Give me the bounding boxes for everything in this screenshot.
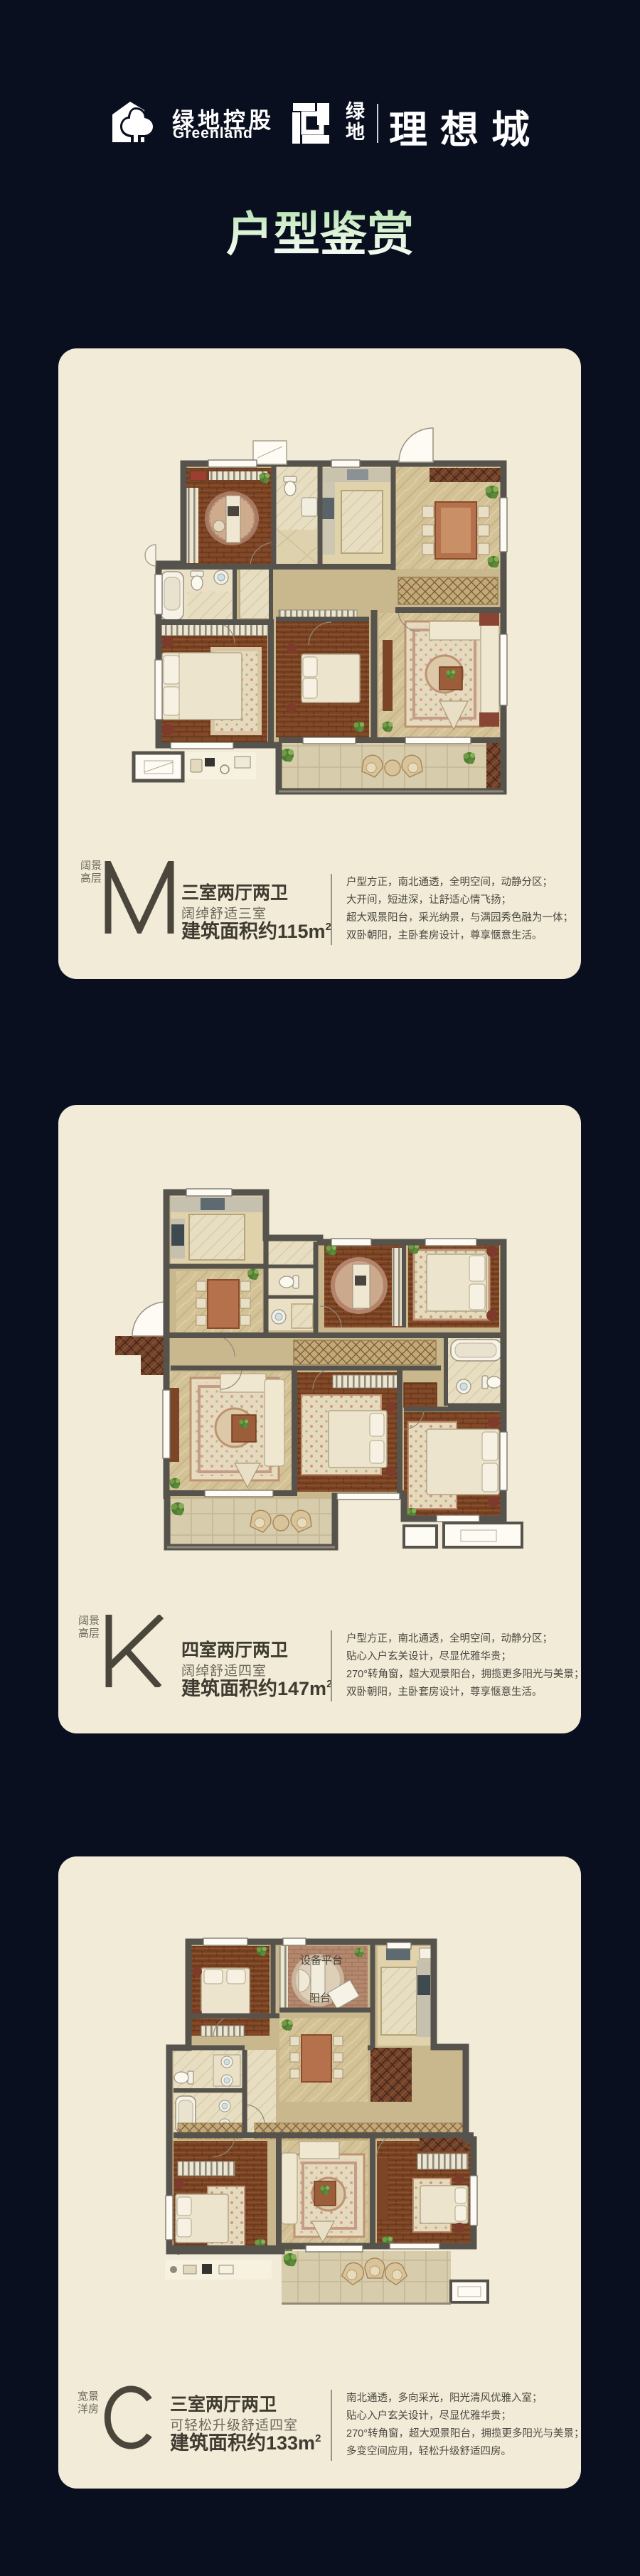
svg-text:阳台: 阳台 bbox=[309, 1992, 331, 2004]
svg-text:设备平台: 设备平台 bbox=[300, 1955, 343, 1967]
